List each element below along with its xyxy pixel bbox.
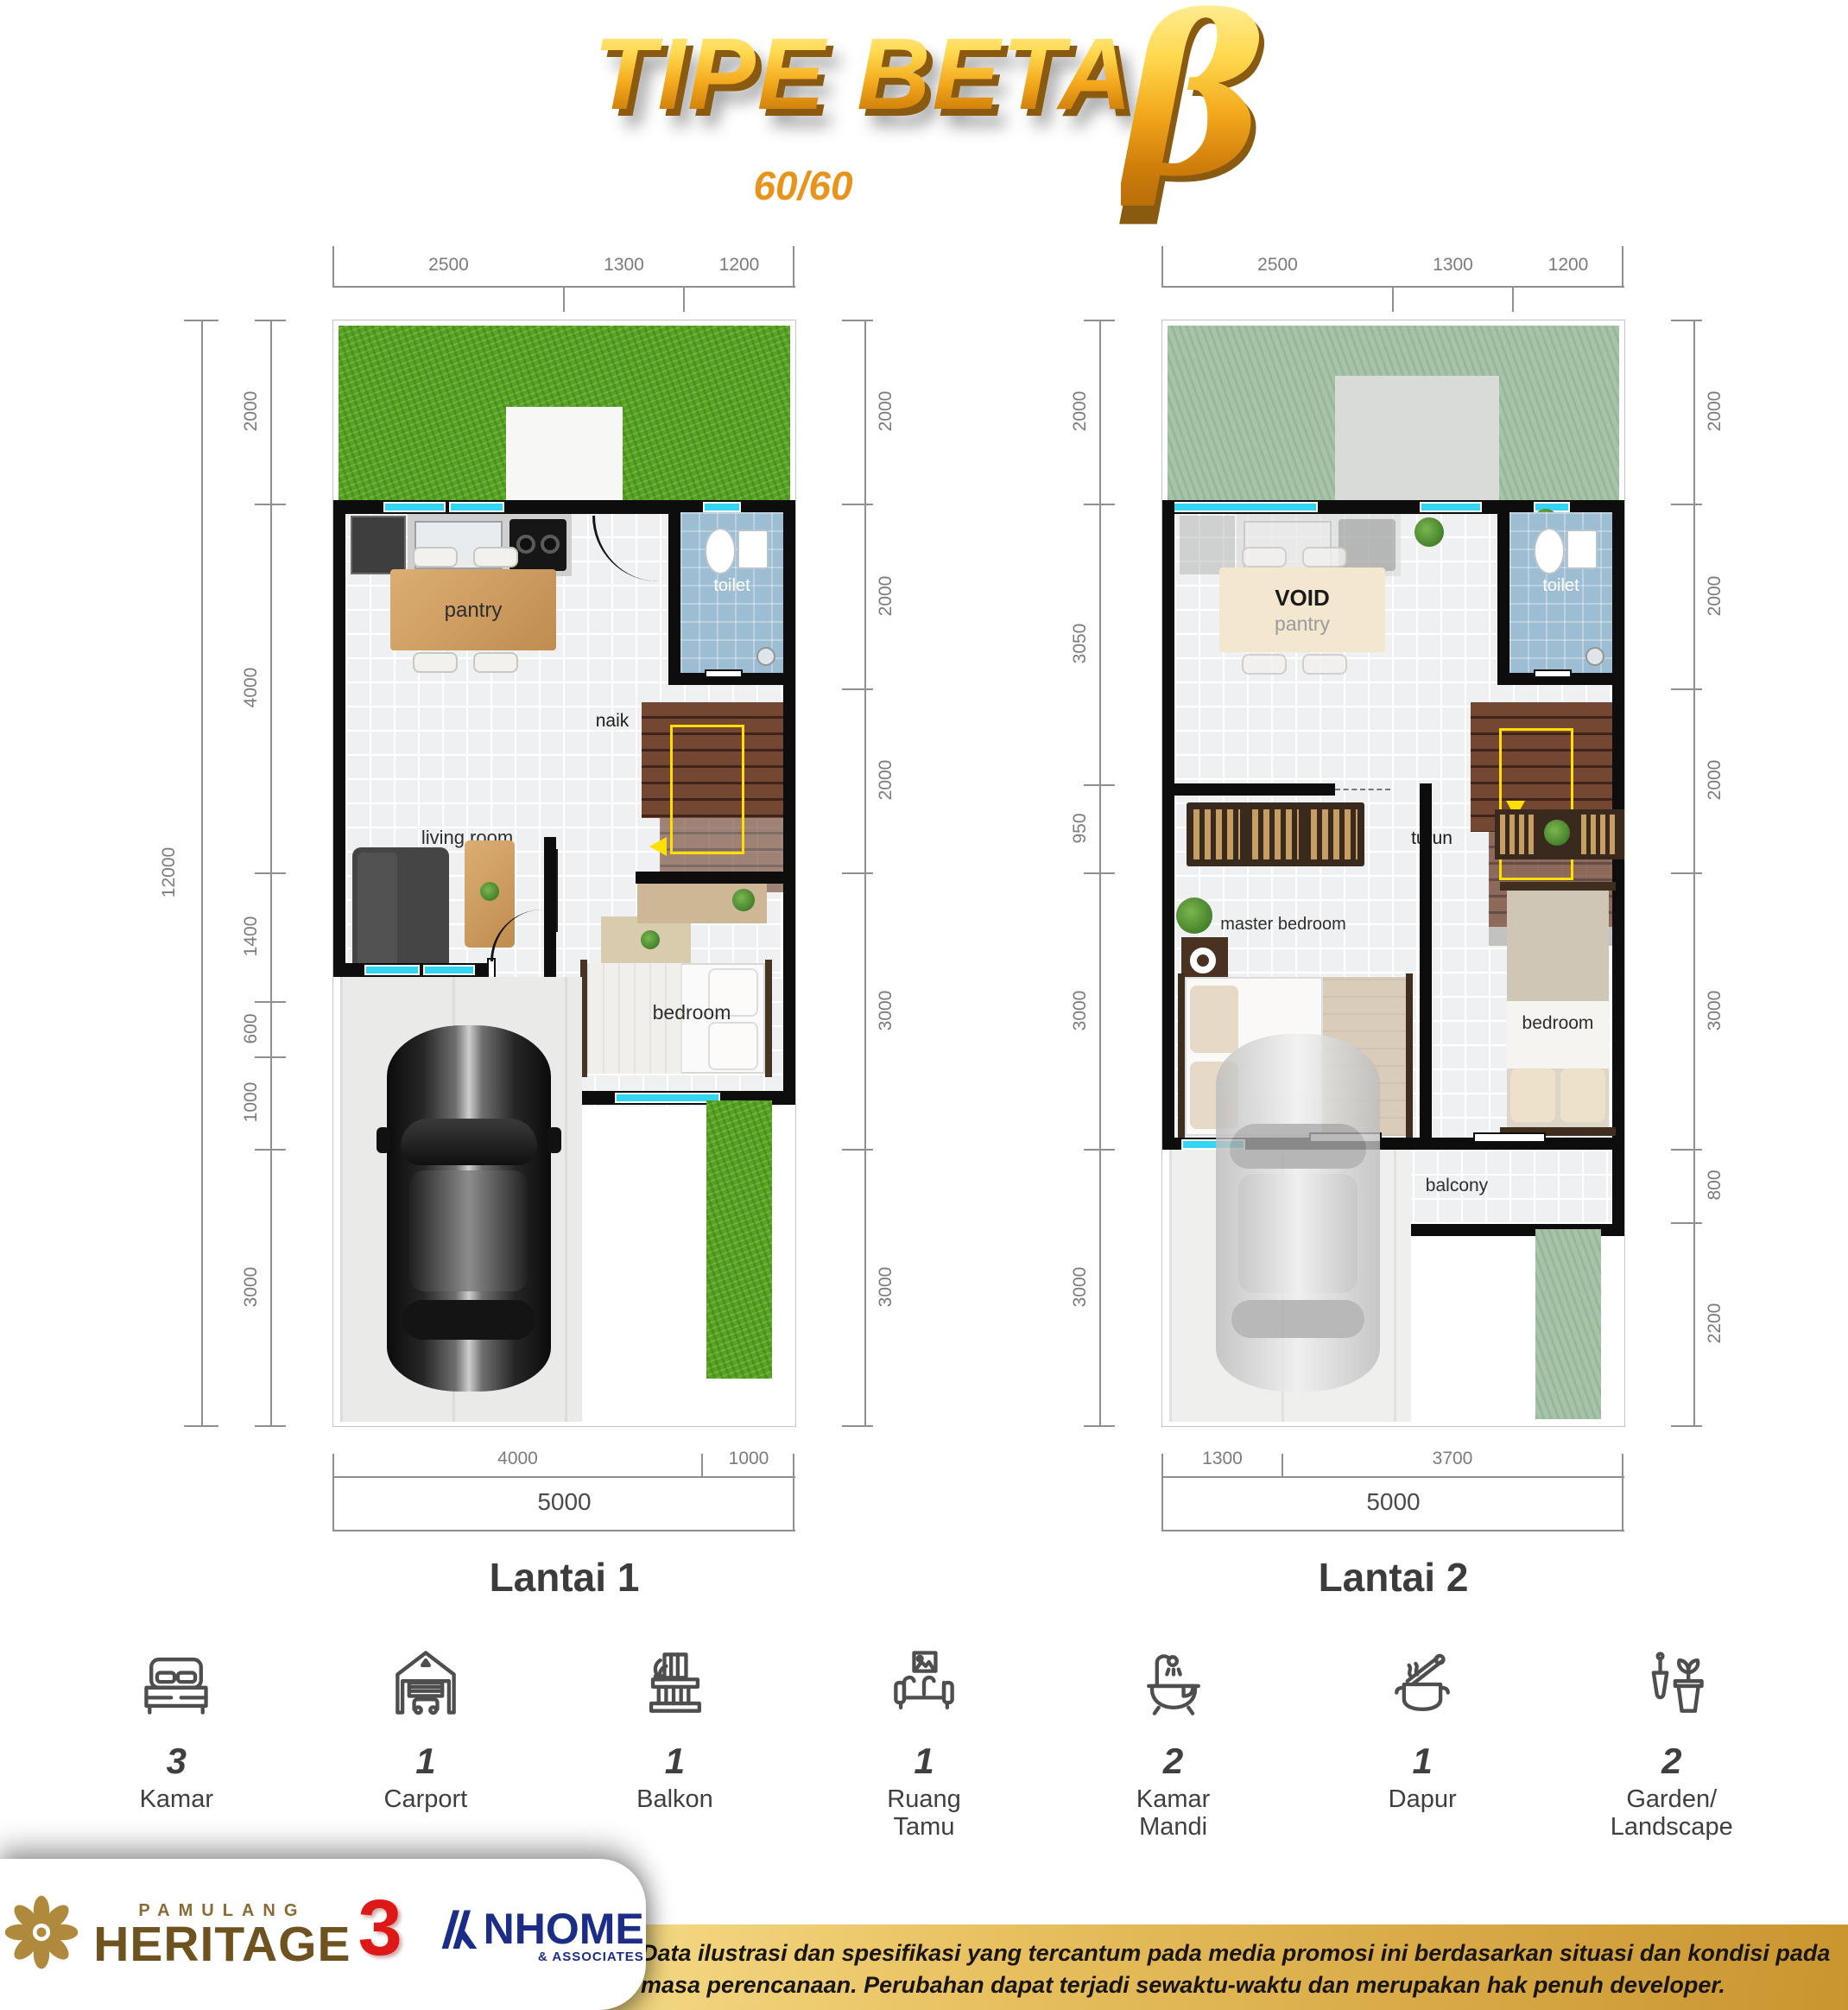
dim-tick <box>1671 504 1702 505</box>
toilet-tank <box>737 529 769 569</box>
dim-label: 3000 <box>1705 972 1725 1049</box>
dim-tick <box>255 1425 286 1427</box>
car-rear-window <box>402 1300 535 1340</box>
header: TIPE BETA TIPE BETA β β 60/60 <box>0 0 1848 216</box>
wall <box>1612 500 1624 1236</box>
dim-tick <box>255 872 286 874</box>
feature-kamar: 3 Kamar <box>52 1643 301 1842</box>
wardrobe-slats <box>1581 815 1616 854</box>
dim-line <box>333 1530 795 1531</box>
room-label-bedroom: bedroom <box>618 1001 765 1024</box>
wall <box>1162 783 1335 796</box>
bed-pillow <box>1510 1068 1555 1122</box>
door-slab <box>705 669 743 678</box>
garden-strip <box>706 1100 772 1379</box>
window <box>615 1093 720 1103</box>
beta-text: β <box>1121 0 1265 206</box>
dim-tick <box>184 1425 218 1427</box>
window <box>1420 502 1482 512</box>
carport-icon <box>384 1643 467 1730</box>
ghost-stove <box>1339 519 1395 571</box>
bed-frame <box>1406 973 1413 1139</box>
dim-label: 1300 <box>564 255 684 276</box>
feature-label: Garden/ Landscape <box>1603 1785 1741 1842</box>
feature-label: Kamar <box>140 1785 213 1813</box>
dim-label-total-height: 12000 <box>159 834 180 911</box>
dim-label: 2000 <box>241 372 262 450</box>
dim-label: 1000 <box>241 1063 262 1141</box>
dim-tick <box>1084 872 1115 874</box>
dim-label: 1300 <box>1393 255 1513 276</box>
dim-label: 3700 <box>1282 1449 1623 1469</box>
room-label-master-bedroom: master bedroom <box>1188 915 1378 935</box>
sofa-icon <box>883 1643 965 1730</box>
fridge <box>351 516 406 574</box>
car-roof <box>409 1170 528 1291</box>
dim-line <box>1162 1476 1624 1478</box>
bed-pillow <box>1560 1068 1605 1122</box>
window <box>1173 502 1318 512</box>
room-label-pantry: pantry <box>390 599 556 623</box>
stair-arrow <box>649 837 667 856</box>
dim-tick <box>184 320 218 321</box>
window <box>383 502 446 512</box>
dim-tick <box>1671 872 1702 874</box>
dim-label: 2000 <box>876 741 896 819</box>
wardrobe-slats <box>1193 809 1240 859</box>
anhome-mark-icon <box>435 1905 484 1953</box>
plan-title: Lantai 2 <box>1162 1554 1624 1601</box>
roof-path <box>1335 376 1499 500</box>
toilet-tank <box>1566 529 1598 569</box>
room-label-bedroom: bedroom <box>1507 1013 1609 1034</box>
wall <box>783 500 795 1105</box>
dim-label: 2000 <box>1705 741 1725 819</box>
ghost-car-roof <box>1238 1174 1358 1293</box>
page-title-text: TIPE BETA <box>544 16 1183 133</box>
toilet-bowl <box>705 528 736 574</box>
anhome-logo: NHOME & ASSOCIATES <box>435 1905 644 1964</box>
dim-tick <box>563 286 565 312</box>
dim-tick <box>1392 286 1394 312</box>
dim-label: 2000 <box>876 372 896 450</box>
dim-tick <box>842 1425 873 1427</box>
plant <box>641 930 660 949</box>
dim-label: 1200 <box>684 255 794 276</box>
dim-tick <box>1084 504 1115 505</box>
room-label-turun: turun <box>1397 828 1466 849</box>
bed-sheet <box>1507 1001 1609 1068</box>
features-row: 3 Kamar 1 Carport 1 Balkon 1 Ruang Tamu <box>52 1643 1796 1842</box>
dim-tick <box>1512 286 1514 312</box>
chair <box>1242 654 1287 675</box>
feature-count: 1 <box>1413 1741 1433 1782</box>
door-slab <box>1534 669 1572 678</box>
feature-count: 2 <box>1661 1741 1681 1782</box>
car-mirror <box>547 1127 561 1153</box>
dim-label: 3000 <box>1070 972 1091 1049</box>
feature-label: Kamar Mandi <box>1104 1785 1243 1842</box>
floorplan-lantai-2: 2500 1300 1200 2000 3050 950 3000 3000 2… <box>1161 320 1625 1427</box>
dim-tick <box>842 872 873 874</box>
dim-label: 2000 <box>1705 557 1725 635</box>
feature-count: 1 <box>415 1741 435 1782</box>
floorplan-lantai-1: 2500 1300 1200 12000 2000 4000 1400 600 … <box>332 320 796 1427</box>
dim-label-total-width: 5000 <box>1162 1488 1624 1516</box>
dim-label: 600 <box>241 990 262 1068</box>
chair <box>473 547 518 567</box>
plan-title: Lantai 1 <box>333 1554 795 1601</box>
chair <box>413 547 458 567</box>
dim-label: 1300 <box>1162 1449 1282 1469</box>
ghost-fridge <box>1180 516 1235 574</box>
feature-label: Carport <box>384 1785 468 1813</box>
chair <box>473 652 518 673</box>
feature-dapur: 1 Dapur <box>1298 1643 1547 1842</box>
plant <box>1544 820 1570 846</box>
dresser-mirror <box>1190 948 1216 973</box>
ghost-car-rear-window <box>1231 1300 1364 1338</box>
dim-label: 1000 <box>702 1449 795 1469</box>
dim-tick <box>1671 1149 1702 1151</box>
wardrobe-slats <box>1311 809 1358 859</box>
window <box>364 965 420 975</box>
dim-label: 3000 <box>876 1248 896 1326</box>
dim-label: 1400 <box>241 897 262 975</box>
plant <box>732 889 755 911</box>
feature-count: 2 <box>1163 1741 1183 1782</box>
wall <box>668 500 680 685</box>
door-dashed-line <box>1335 789 1390 790</box>
dim-tick <box>842 320 873 321</box>
room-label-balcony: balcony <box>1401 1176 1513 1196</box>
dim-label: 3000 <box>241 1248 262 1326</box>
dim-line <box>201 320 203 1426</box>
poster: TIPE BETA TIPE BETA β β 60/60 2500 1300 … <box>0 0 1848 2010</box>
car-windshield <box>401 1119 537 1165</box>
shower-drain <box>756 647 775 666</box>
wall <box>1162 500 1174 1150</box>
heritage-number: 3 <box>358 1883 402 1974</box>
ghost-car <box>1216 1034 1380 1392</box>
chair <box>1242 547 1287 567</box>
shower-drain <box>1585 647 1604 666</box>
ghost-car-windshield <box>1230 1124 1366 1169</box>
dim-label: 2500 <box>1162 255 1393 276</box>
dim-label: 800 <box>1705 1146 1725 1224</box>
stair-path <box>670 725 744 854</box>
type-size-label: 60/60 <box>682 162 924 209</box>
dim-tick <box>1084 320 1115 321</box>
feature-label: Balkon <box>636 1785 713 1813</box>
dim-line <box>333 1476 795 1478</box>
cooking-pot-icon <box>1381 1643 1464 1730</box>
dim-tick <box>1671 1222 1702 1224</box>
room-label-naik: naik <box>582 711 642 732</box>
dim-label: 1200 <box>1513 255 1623 276</box>
heritage-logo: PAMULANG HERITAGE <box>93 1901 351 1968</box>
car <box>387 1025 551 1392</box>
bathtub-icon <box>1132 1643 1215 1730</box>
garden-icon <box>1630 1643 1713 1730</box>
bed-frame <box>765 960 772 1077</box>
wall <box>333 500 345 977</box>
anhome-main-label: NHOME <box>484 1910 644 1949</box>
room-label-void: VOID <box>1219 585 1385 612</box>
disclaimer-text: Data ilustrasi dan spesifikasi yang terc… <box>641 1937 1832 2002</box>
feature-label: Dapur <box>1389 1785 1457 1813</box>
room-label-toilet: toilet <box>680 576 783 596</box>
dim-label: 3050 <box>1070 605 1091 682</box>
window <box>703 502 741 512</box>
wardrobe-slats <box>1500 815 1535 854</box>
dim-label: 4000 <box>333 1449 702 1469</box>
wall <box>636 872 795 884</box>
page-title: TIPE BETA TIPE BETA <box>544 16 1183 136</box>
dim-tick <box>842 1149 873 1151</box>
stove-burner <box>516 535 535 554</box>
dim-label: 4000 <box>241 649 262 726</box>
dim-tick <box>1084 1149 1115 1151</box>
wardrobe-slats <box>1252 809 1299 859</box>
dim-tick <box>255 320 286 321</box>
dim-label: 3000 <box>876 972 896 1049</box>
dim-tick <box>1671 1425 1702 1427</box>
dim-label: 2500 <box>333 255 564 276</box>
feature-label: Ruang Tamu <box>855 1785 993 1842</box>
room-label-toilet: toilet <box>1509 576 1612 596</box>
brand-card: PAMULANG HERITAGE 3 NHOME & ASSOCIATES <box>0 1859 646 2010</box>
dim-line <box>1162 1530 1624 1531</box>
feature-garden: 2 Garden/ Landscape <box>1547 1643 1796 1842</box>
bed-pillow <box>708 1022 758 1070</box>
wall <box>1497 500 1509 685</box>
dim-tick <box>255 1149 286 1151</box>
stove-burner <box>541 535 560 554</box>
anhome-sub-label: & ASSOCIATES <box>538 1950 644 1964</box>
heritage-flower-icon <box>2 1889 81 1980</box>
bed-blanket <box>1507 891 1609 1001</box>
plant <box>480 882 499 901</box>
dim-label: 2000 <box>1705 372 1725 450</box>
entry-path <box>506 407 623 500</box>
dim-label: 950 <box>1070 789 1091 867</box>
chair <box>1302 654 1347 675</box>
wall <box>1420 783 1432 1138</box>
dim-tick <box>1671 688 1702 690</box>
door-slab <box>1473 1132 1546 1143</box>
bed-frame <box>1500 882 1616 891</box>
balcony-icon <box>633 1643 716 1730</box>
dim-label: 2000 <box>876 557 896 635</box>
dim-tick <box>842 504 873 505</box>
plant <box>1414 517 1444 547</box>
feature-count: 3 <box>167 1741 187 1782</box>
chair <box>413 652 458 673</box>
feature-carport: 1 Carport <box>301 1643 551 1842</box>
dim-label-total-width: 5000 <box>333 1488 795 1516</box>
feature-count: 1 <box>665 1741 685 1782</box>
room-label-void-pantry: pantry <box>1219 612 1385 636</box>
dim-label: 2200 <box>1705 1284 1725 1362</box>
dim-label: 3000 <box>1070 1248 1091 1326</box>
dim-tick <box>1084 784 1115 786</box>
heritage-main-label: HERITAGE <box>93 1921 351 1968</box>
window <box>423 965 475 975</box>
feature-balkon: 1 Balkon <box>550 1643 800 1842</box>
dim-tick <box>1084 1425 1115 1427</box>
bed-icon <box>135 1643 218 1730</box>
garden-strip <box>1535 1229 1601 1419</box>
feature-kamar-mandi: 2 Kamar Mandi <box>1048 1643 1298 1842</box>
feature-ruang-tamu: 1 Ruang Tamu <box>800 1643 1049 1842</box>
window <box>449 502 504 512</box>
dim-label: 2000 <box>1070 372 1091 450</box>
toilet-bowl <box>1534 528 1565 574</box>
wall <box>544 837 556 977</box>
dim-tick <box>842 688 873 690</box>
dim-tick <box>255 504 286 505</box>
bed-frame <box>1178 973 1185 1139</box>
chair <box>1302 547 1347 567</box>
dim-tick <box>1671 320 1702 321</box>
dim-tick <box>683 286 685 312</box>
feature-count: 1 <box>914 1741 933 1782</box>
car-mirror <box>377 1127 390 1153</box>
